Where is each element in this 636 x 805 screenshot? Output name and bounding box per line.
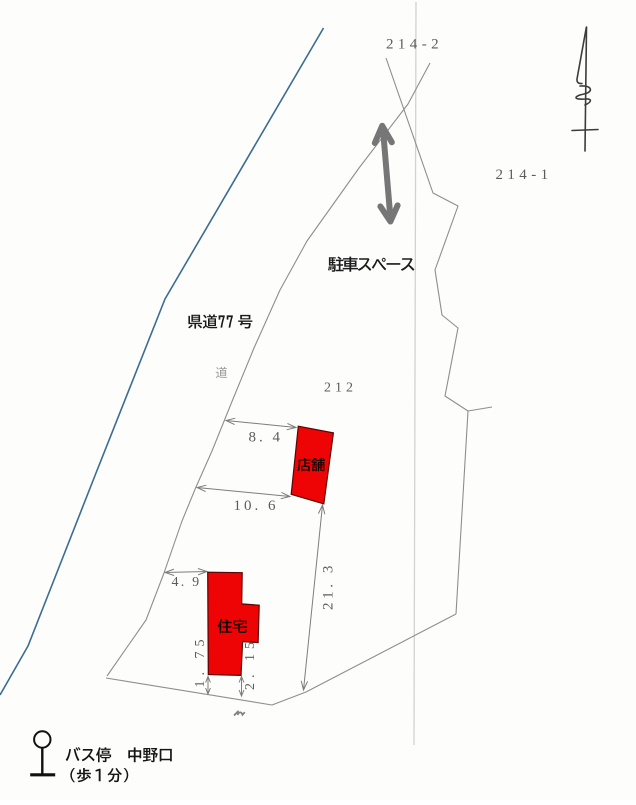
svg-text:10. 6: 10. 6 [234,498,279,514]
svg-text:21. 3: 21. 3 [321,562,337,610]
svg-text:8. 4: 8. 4 [249,430,284,446]
svg-text:214-1: 214-1 [496,167,553,183]
svg-text:2. 15: 2. 15 [243,637,258,690]
svg-text:1. 75: 1. 75 [193,635,208,688]
svg-text:4. 9: 4. 9 [172,575,202,590]
svg-text:212: 212 [324,381,357,396]
svg-text:214-2: 214-2 [386,37,443,53]
